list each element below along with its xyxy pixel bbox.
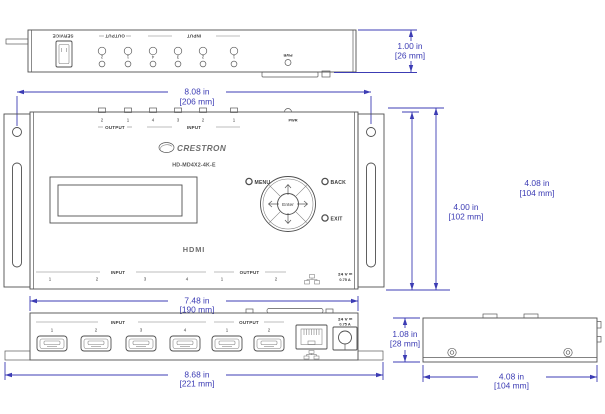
lan-node (314, 356, 319, 359)
led-number: 3 (176, 55, 179, 60)
arrowhead (409, 65, 413, 72)
dim-text: [206 mm] (180, 97, 215, 107)
arrowhead (434, 283, 438, 290)
pwr-label: PWR (288, 118, 297, 123)
screw-icon (564, 348, 572, 356)
dim-text: 4.00 in (453, 202, 478, 212)
led-number: 2 (100, 55, 103, 60)
top-pwr-label: PWR (283, 53, 292, 58)
top-edge-tab (524, 314, 538, 318)
screw-icon-center (450, 351, 454, 355)
power-jack-barrel (339, 331, 352, 344)
arrowhead (403, 318, 407, 325)
output-group-label: OUTPUT (239, 320, 259, 325)
dimension-drawing-page: SERVICE OUTPUT INPUT 2 1 4 (0, 0, 605, 414)
led-number: 1 (232, 55, 235, 60)
dim-total-width: 8.68 in [221 mm] (5, 362, 383, 389)
port-number: 3 (144, 277, 147, 282)
dim-text: [102 mm] (449, 212, 484, 222)
port-number: 1 (233, 118, 236, 123)
hdmi-port-output-1 (212, 336, 242, 351)
top-view: SERVICE OUTPUT INPUT 2 1 4 (6, 30, 356, 77)
mounting-slot (13, 163, 22, 267)
led-number: 2 (201, 55, 204, 60)
panel-view: INPUT OUTPUT 1 2 3 4 1 2 (5, 309, 383, 361)
top-view-rear-connector-edge (262, 72, 318, 77)
rj45-clip (308, 341, 315, 345)
led-circle (149, 47, 157, 55)
front-face-outline (30, 112, 358, 289)
lan-icon (305, 275, 320, 285)
usb-port-inner (59, 45, 69, 64)
dim-top-height: 1.00 in [26 mm] (334, 30, 425, 73)
crestron-swirl-icon (159, 143, 174, 153)
dim-text: 1.00 in (397, 41, 422, 51)
top-input-led-1: 1 (230, 47, 238, 67)
rj45-outline (296, 325, 327, 349)
port-number: 1 (127, 118, 130, 123)
dim-body-height: 4.00 in [102 mm] (402, 112, 483, 290)
model-number: HD-MD4X2-4K-E (172, 163, 216, 169)
led-circle (199, 47, 207, 55)
back-button-icon (322, 178, 328, 184)
side-connector-stub (597, 337, 601, 343)
port-number: 3 (177, 118, 180, 123)
lan-icon (304, 351, 319, 360)
top-input-led-3: 3 (174, 47, 182, 67)
hdmi-port-inner (257, 339, 281, 349)
hdmi-port-inner (84, 339, 108, 349)
output-group-label: OUTPUT (105, 125, 125, 130)
output-group-label: OUTPUT (240, 270, 260, 275)
arrowhead (434, 108, 438, 115)
exit-button-icon (322, 215, 328, 221)
screw-icon-center (566, 351, 570, 355)
port-number: 3 (140, 328, 143, 333)
port-number: 4 (152, 118, 155, 123)
pwr-led-circle (285, 60, 291, 66)
lan-node (315, 281, 320, 285)
amperage-label: 0.75 A (339, 277, 351, 282)
arrowhead (423, 375, 430, 379)
dim-text: [28 mm] (390, 339, 420, 349)
quadrant-divider (269, 185, 280, 196)
top-output-label: OUTPUT (105, 34, 125, 39)
top-edge-tab (483, 314, 497, 318)
brand-text: CRESTRON (177, 144, 227, 153)
top-output-led-1: 1 (124, 47, 132, 67)
amperage-label: 0.75 A (339, 322, 351, 327)
quadrant-divider (269, 212, 280, 223)
rj45-pins (304, 329, 319, 335)
dim-side-depth: 4.08 in [104 mm] (423, 365, 597, 391)
port-number: 2 (96, 277, 99, 282)
top-edge-tab (246, 309, 253, 313)
port-number: 4 (186, 277, 189, 282)
hdmi-port-input-4 (170, 336, 200, 351)
lcd-display-window (58, 185, 182, 216)
led-number: 4 (151, 55, 154, 60)
arrowhead (351, 299, 358, 303)
input-group-label: INPUT (187, 125, 202, 130)
port-number: 1 (49, 277, 52, 282)
arrowhead (410, 112, 414, 119)
top-input-label: INPUT (187, 34, 202, 39)
rj45-port-icon (296, 325, 327, 359)
pwr-led-dome (285, 109, 292, 113)
menu-button-icon (246, 178, 252, 184)
dim-text: 8.08 in (184, 87, 209, 97)
top-edge-connector-bump (267, 309, 323, 314)
hdmi-port-tongue (219, 341, 235, 345)
quadrant-divider (296, 185, 307, 196)
port-number: 1 (226, 328, 229, 333)
arrowhead (590, 375, 597, 379)
port-number: 1 (51, 328, 54, 333)
port-number: 2 (202, 118, 205, 123)
button-circle (175, 61, 181, 67)
dim-front-width: 7.48 in [190 mm] (30, 296, 358, 315)
dim-text: [104 mm] (494, 381, 529, 391)
quadrant-divider (296, 212, 307, 223)
hdmi-logo: HDMI (183, 245, 205, 254)
top-input-led-2: 2 (199, 47, 207, 67)
side-view (423, 314, 601, 362)
hdmi-port-tongue (44, 341, 60, 345)
front-view: 2 1 4 3 2 1 OUTPUT INPUT PWR CRESTRON HD… (4, 108, 384, 289)
led-circle (230, 47, 238, 55)
top-view-left-ear-edge (6, 39, 28, 44)
hdmi-port-tongue (177, 341, 193, 345)
enter-label: Enter (282, 202, 294, 208)
led-number: 1 (126, 55, 129, 60)
hdmi-port-inner (129, 339, 153, 349)
input-group-label: INPUT (111, 270, 126, 275)
port-number: 1 (221, 277, 224, 282)
hdmi-port-inner (173, 339, 197, 349)
power-jack-icon: 24 V ⎓ 0.75 A (333, 317, 357, 351)
port-number: 2 (101, 118, 104, 123)
arrowhead (403, 355, 407, 362)
voltage-label: 24 V ⎓ (338, 272, 353, 277)
screw-icon (448, 348, 456, 356)
dim-text: 4.08 in (524, 178, 549, 188)
button-circle (125, 61, 131, 67)
menu-label: MENU (255, 180, 271, 186)
dim-side-height: 1.08 in [28 mm] (390, 318, 420, 362)
button-circle (150, 61, 156, 67)
hdmi-port-input-3 (126, 336, 156, 351)
side-connector-stub (597, 322, 601, 329)
dim-total-height: 4.08 in [104 mm] (386, 108, 554, 290)
lan-links (307, 354, 317, 357)
dimension-drawing: SERVICE OUTPUT INPUT 2 1 4 (0, 0, 605, 414)
arrowhead (17, 90, 24, 94)
led-circle (98, 47, 106, 55)
top-input-led-4: 4 (149, 47, 157, 67)
hdmi-port-tongue (261, 341, 277, 345)
hdmi-port-input-2 (81, 336, 111, 351)
button-circle (231, 61, 237, 67)
lan-links (307, 278, 317, 281)
mounting-hole (13, 128, 22, 137)
lan-node (310, 275, 315, 279)
hdmi-port-inner (215, 339, 239, 349)
exit-label: EXIT (331, 216, 344, 222)
back-label: BACK (331, 180, 347, 186)
dim-mount-width: 8.08 in [206 mm] (17, 87, 371, 127)
lan-node (309, 351, 314, 354)
usb-port-outline (56, 41, 72, 67)
dim-text: 1.08 in (392, 329, 417, 339)
arrowhead (409, 30, 413, 37)
hdmi-port-input-1 (37, 336, 67, 351)
service-label: SERVICE (52, 34, 73, 39)
right-mounting-ear (358, 114, 384, 287)
lan-node (304, 356, 309, 359)
right-ear-edge (358, 351, 383, 360)
arrowhead (410, 283, 414, 290)
arrowhead (5, 373, 12, 377)
input-group-label: INPUT (111, 320, 126, 325)
arrowhead (30, 299, 37, 303)
port-number: 2 (268, 328, 271, 333)
crestron-swirl-inner (160, 145, 172, 150)
dim-text: [221 mm] (180, 379, 215, 389)
left-ear-edge (5, 351, 30, 360)
hdmi-port-tongue (133, 341, 149, 345)
hdmi-port-tongue (88, 341, 104, 345)
led-circle (124, 47, 132, 55)
crestron-logo: CRESTRON (159, 143, 227, 154)
usb-service-port-icon (56, 41, 72, 67)
port-number: 4 (184, 328, 187, 333)
lan-node (305, 281, 310, 285)
hdmi-port-output-2 (254, 336, 284, 351)
mounting-hole (367, 128, 376, 137)
button-circle (200, 61, 206, 67)
dim-text: [104 mm] (520, 188, 555, 198)
arrowhead (376, 373, 383, 377)
top-output-led-2: 2 (98, 47, 106, 67)
arrowhead (364, 90, 371, 94)
mounting-slot (367, 163, 376, 267)
top-edge-tab (326, 309, 333, 313)
dim-text: [26 mm] (395, 51, 425, 61)
led-circle (174, 47, 182, 55)
left-mounting-ear (4, 114, 30, 287)
port-number: 2 (95, 328, 98, 333)
hdmi-port-inner (40, 339, 64, 349)
button-circle (99, 61, 105, 67)
port-number: 2 (275, 277, 278, 282)
